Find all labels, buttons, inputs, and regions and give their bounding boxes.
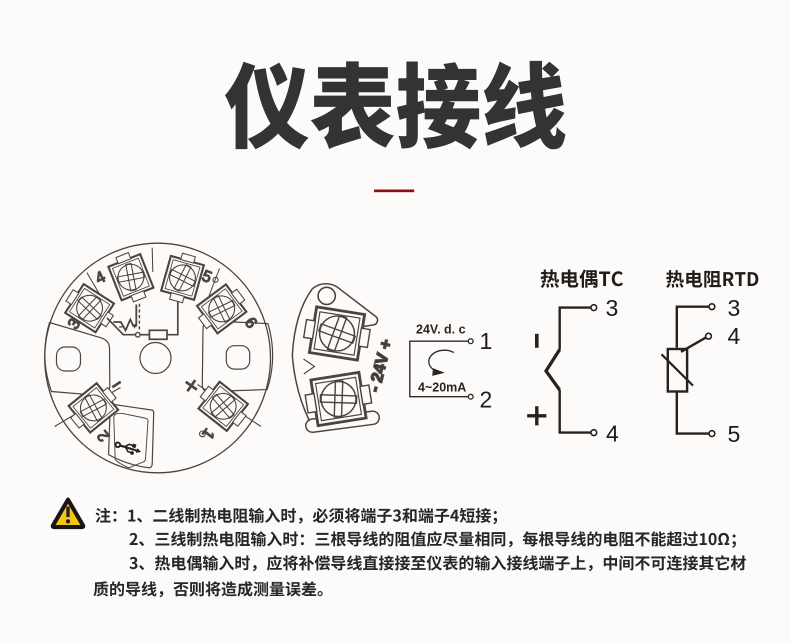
- svg-text:2: 2: [480, 387, 493, 413]
- svg-text:2: 2: [94, 427, 113, 445]
- svg-text:3: 3: [606, 295, 619, 321]
- svg-text:4: 4: [728, 323, 741, 349]
- svg-text:1: 1: [198, 425, 217, 443]
- svg-text:24V. d. c: 24V. d. c: [416, 323, 466, 337]
- svg-text:4: 4: [93, 269, 109, 288]
- svg-text:3: 3: [728, 295, 741, 321]
- svg-text:5: 5: [728, 421, 741, 447]
- svg-text:- 24V +: - 24V +: [365, 338, 395, 394]
- svg-text:1: 1: [480, 328, 493, 354]
- svg-text:4: 4: [606, 421, 619, 447]
- svg-text:6: 6: [241, 315, 260, 332]
- svg-text:4~20mA: 4~20mA: [418, 380, 466, 394]
